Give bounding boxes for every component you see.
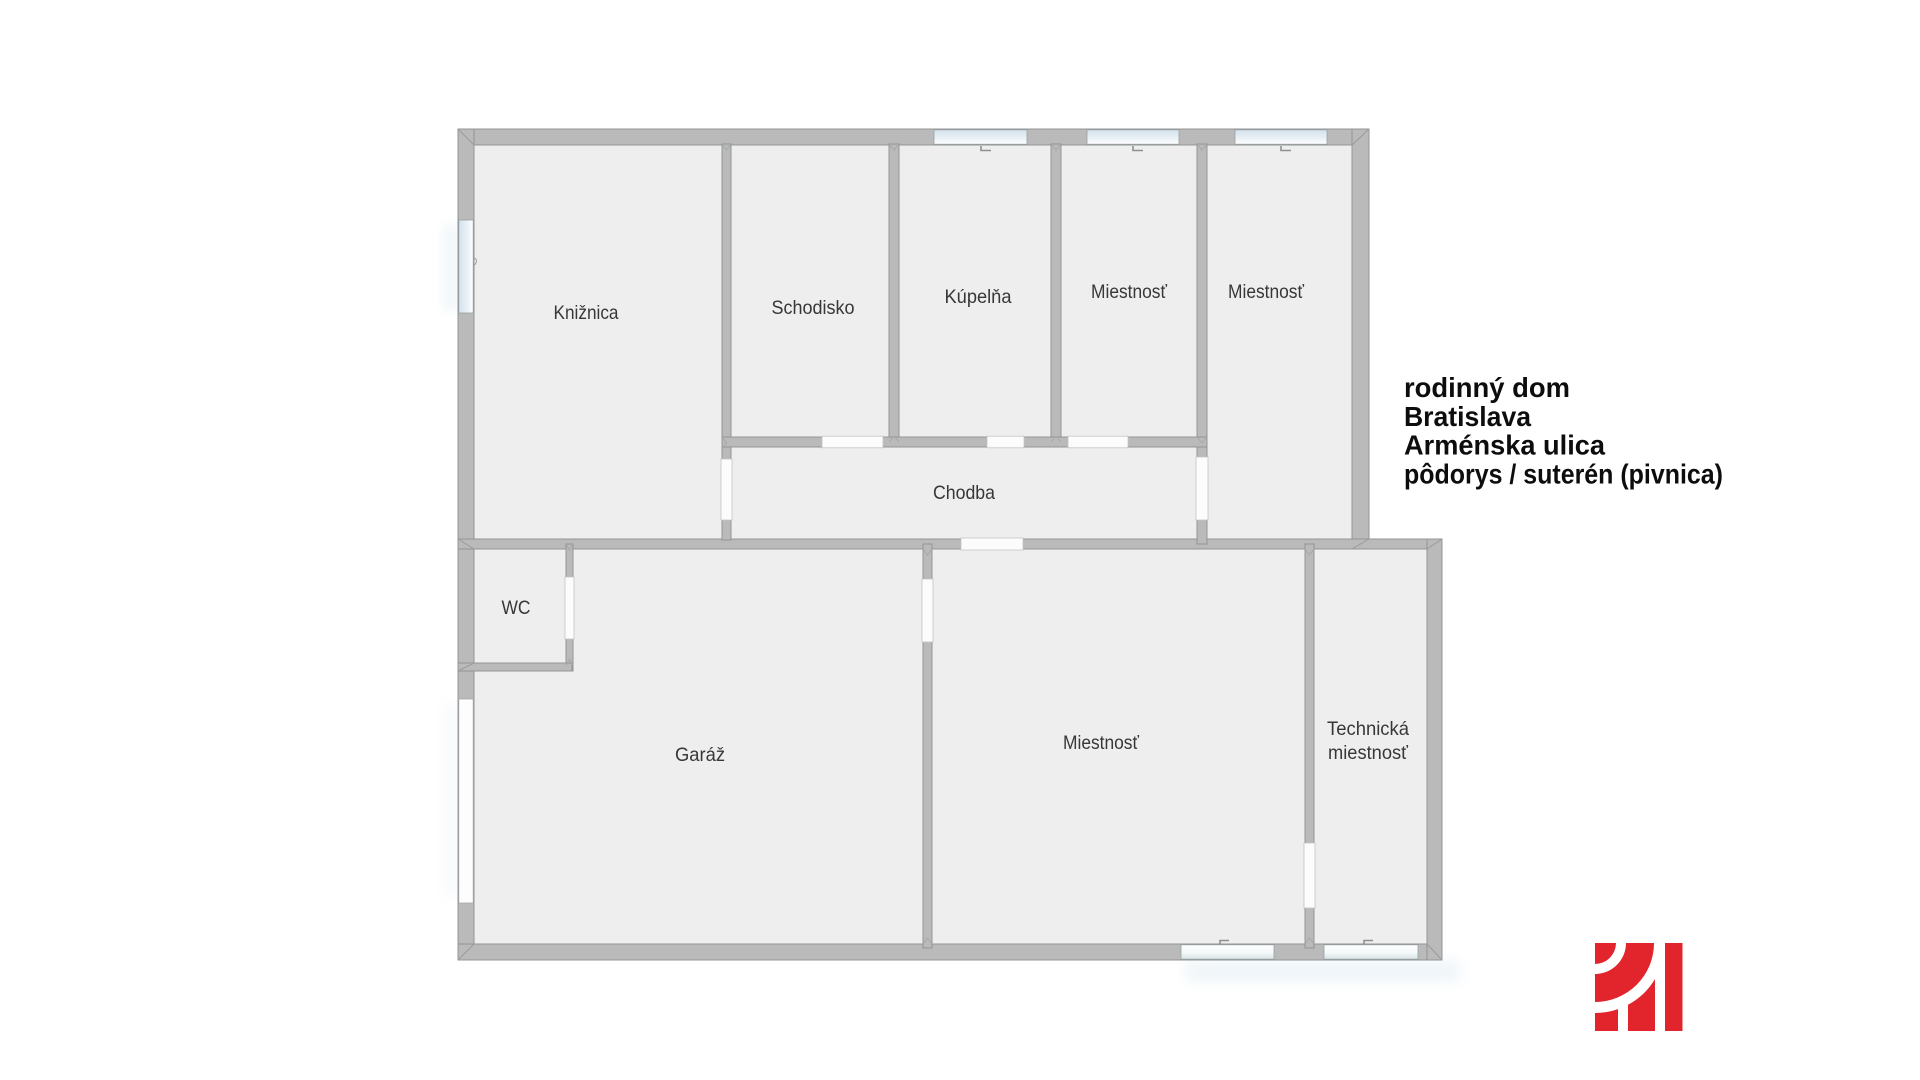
- svg-text:rodinný dom: rodinný dom: [1404, 372, 1570, 403]
- svg-text:Knižnica: Knižnica: [554, 302, 619, 324]
- svg-text:Schodisko: Schodisko: [772, 297, 855, 319]
- svg-text:Miestnosť: Miestnosť: [1063, 732, 1140, 754]
- svg-text:miestnosť: miestnosť: [1328, 742, 1409, 764]
- svg-text:Bratislava: Bratislava: [1404, 401, 1531, 432]
- svg-text:Kúpelňa: Kúpelňa: [945, 286, 1012, 308]
- svg-text:Arménska ulica: Arménska ulica: [1404, 430, 1605, 461]
- svg-text:Garáž: Garáž: [675, 744, 725, 766]
- svg-text:Miestnosť: Miestnosť: [1228, 281, 1305, 303]
- svg-text:Miestnosť: Miestnosť: [1091, 281, 1168, 303]
- svg-text:Chodba: Chodba: [933, 482, 995, 504]
- svg-text:pôdorys / suterén (pivnica): pôdorys / suterén (pivnica): [1404, 459, 1723, 490]
- svg-text:WC: WC: [502, 597, 531, 619]
- svg-text:Technická: Technická: [1327, 718, 1409, 740]
